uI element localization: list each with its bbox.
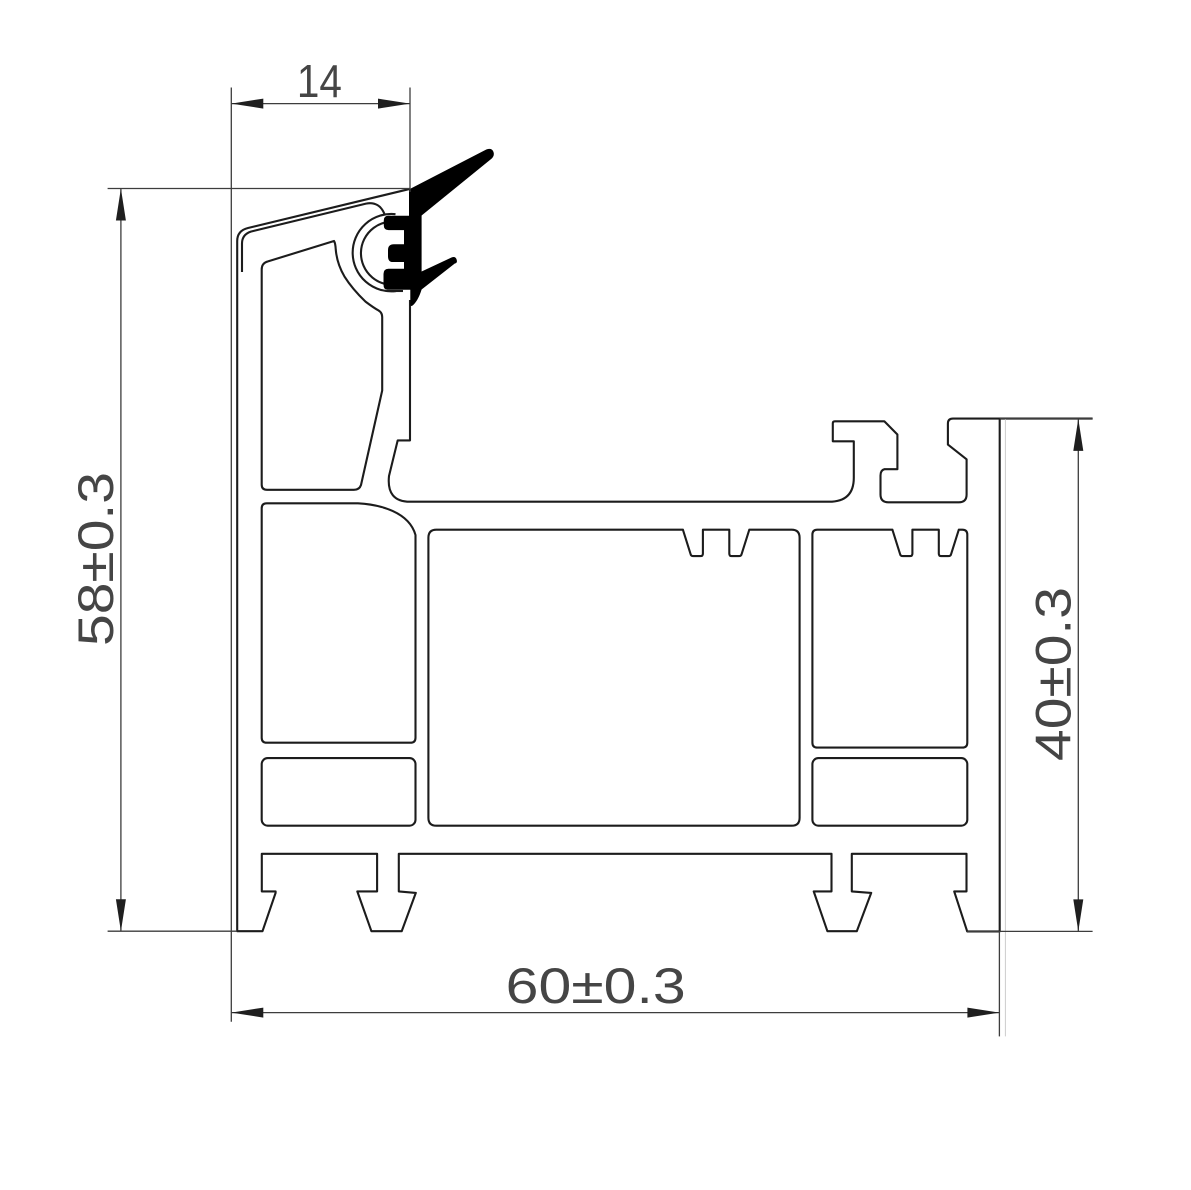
svg-text:40±0.3: 40±0.3 [1026,587,1082,761]
svg-text:14: 14 [297,55,342,107]
svg-text:58±0.3: 58±0.3 [68,472,124,646]
svg-text:60±0.3: 60±0.3 [506,958,686,1014]
